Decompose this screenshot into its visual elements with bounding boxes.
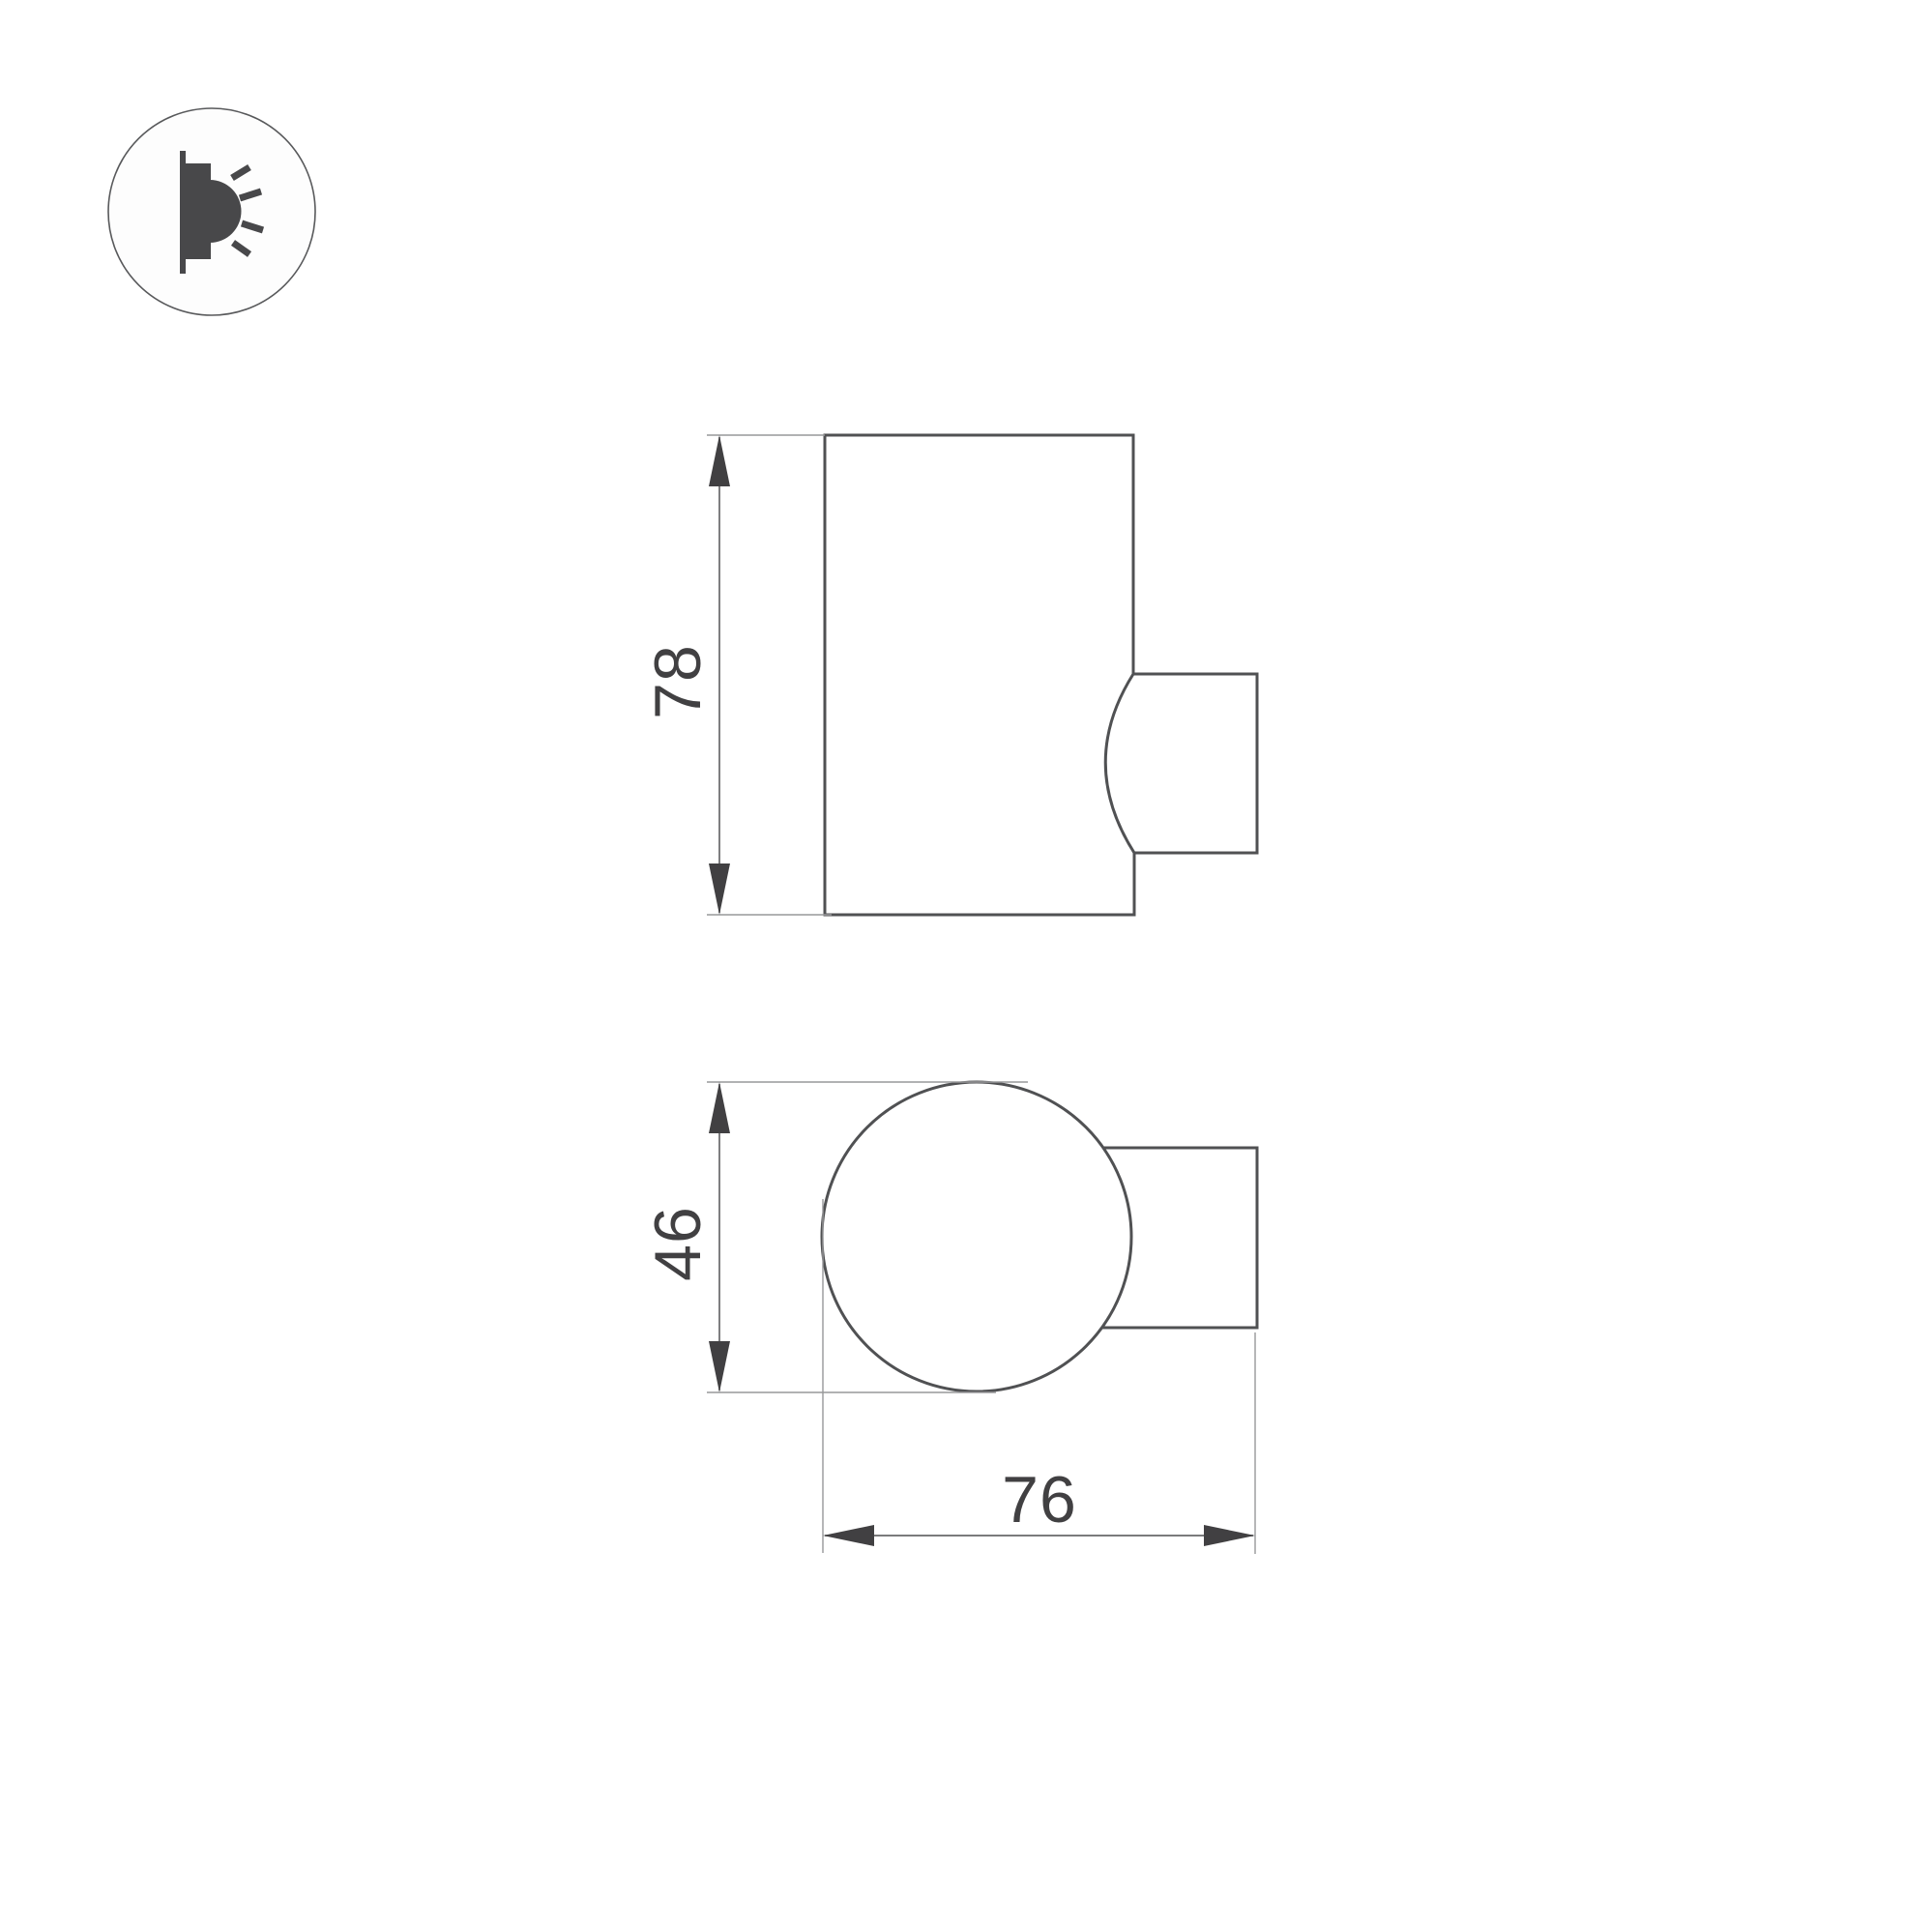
dim-label-diameter: 46 [641, 1206, 715, 1281]
top-view: 46 76 [641, 1082, 1257, 1554]
arrowhead-up-icon [709, 1082, 730, 1133]
arrowhead-right-icon [1204, 1525, 1255, 1546]
arrowhead-down-icon [709, 864, 730, 915]
top-mount-outline [1101, 1148, 1257, 1328]
side-body-outline [825, 435, 1134, 915]
arrowhead-down-icon [709, 1341, 730, 1392]
wall-light-icon [108, 108, 315, 315]
drawing-canvas: 78 46 76 [0, 0, 1932, 1932]
dimension-drawing: 78 46 76 [0, 0, 1932, 1932]
arrowhead-up-icon [709, 435, 730, 486]
side-view: 78 [641, 435, 1257, 915]
side-mount-outline [1133, 674, 1257, 853]
arrowhead-left-icon [823, 1525, 874, 1546]
icon-lamp-body [185, 163, 211, 259]
dim-label-height: 78 [641, 644, 715, 719]
dim-label-width: 76 [1002, 1463, 1077, 1537]
top-body-circle [822, 1082, 1131, 1391]
